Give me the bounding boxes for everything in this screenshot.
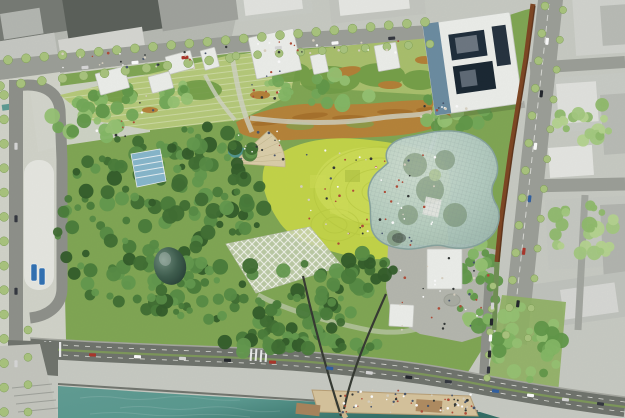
- photo-grain: [0, 0, 625, 418]
- masterplan-svg: [0, 0, 625, 418]
- masterplan-rendering: [0, 0, 625, 418]
